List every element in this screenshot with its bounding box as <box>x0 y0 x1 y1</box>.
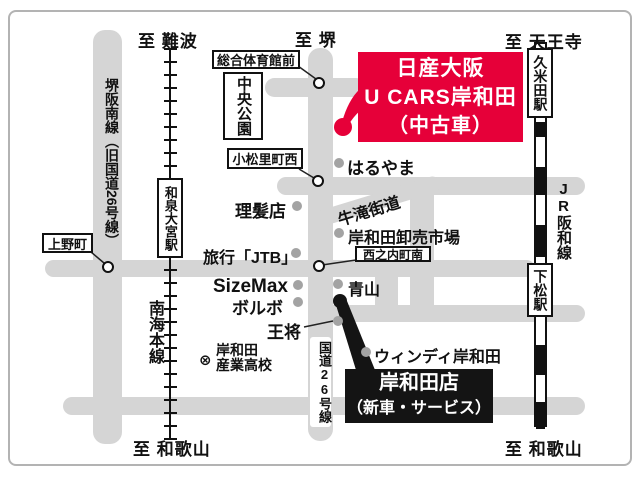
label-box-komatsuri: 小松里町西 <box>227 148 303 169</box>
poi-label-aoyama: 青山 <box>348 276 380 300</box>
map-canvas: 至 難波 至 堺 至 天王寺 至 和歌山 至 和歌山 堺阪南線（旧国道26号線）… <box>0 0 640 480</box>
poi-dot-haruyama <box>334 158 344 168</box>
poi-label-jtb: 旅行「JTB」 <box>203 244 297 268</box>
direction-label-namba: 至 難波 <box>138 27 198 52</box>
poi-label-school-line2: 産業高校 <box>216 358 272 373</box>
ucars-line1: 日産大阪 <box>397 54 485 83</box>
jr-black-segment <box>536 225 545 257</box>
poi-label-haruyama: はるやま <box>347 154 415 179</box>
main-store-line1: 岸和田店 <box>379 371 459 396</box>
label-box-ueno: 上野町 <box>42 233 93 253</box>
poi-label-volvo: ボルボ <box>232 294 283 319</box>
label-box-chuokoen: 中央公園 <box>223 72 263 140</box>
station-box-shimomatsu: 下松駅 <box>527 263 553 317</box>
road-label-route26: 国道26号線 <box>310 337 331 427</box>
poi-label-school-line1: 岸和田 <box>216 343 272 358</box>
poi-label-school: 岸和田 産業高校 <box>216 343 272 373</box>
poi-label-barber: 理髪店 <box>235 197 286 222</box>
label-box-sogotaiikukan: 総合体育館前 <box>212 50 300 69</box>
jr-black-segment <box>536 345 545 375</box>
station-box-kumeda: 久米田駅 <box>527 48 553 118</box>
ucars-callout-box: 日産大阪 U CARS岸和田 （中古車） <box>358 52 523 142</box>
railway-label-jr-hanwa: JR阪和線 <box>551 170 571 270</box>
poi-dot-aoyama <box>333 279 343 289</box>
intersection-circle-nishinouchi <box>313 260 325 272</box>
ucars-line3: （中古車） <box>388 112 493 141</box>
ucars-location-dot <box>334 118 352 136</box>
main-store-callout-box: 岸和田店 （新車・サービス） <box>345 369 493 423</box>
poi-label-osho: 王将 <box>267 318 301 343</box>
poi-dot-osho <box>333 316 343 326</box>
intersection-circle-komatsuri <box>312 175 324 187</box>
poi-dot-windy <box>361 347 371 357</box>
poi-dot-sizemax <box>293 280 303 290</box>
station-box-izumiomiya: 和泉大宮駅 <box>157 178 183 258</box>
jr-black-segment <box>536 402 545 429</box>
direction-label-sakai: 至 堺 <box>295 26 337 51</box>
poi-dot-barber <box>292 201 302 211</box>
poi-dot-volvo <box>293 297 303 307</box>
direction-label-wakayama-left: 至 和歌山 <box>133 435 211 460</box>
direction-label-wakayama-right: 至 和歌山 <box>505 435 583 460</box>
road-label-sakaihannan: 堺阪南線（旧国道26号線） <box>96 70 119 255</box>
school-symbol-icon: ⊗ <box>199 351 212 369</box>
label-box-nishinouchi: 西之内町南 <box>355 246 431 262</box>
intersection-circle-ueno <box>102 261 114 273</box>
jr-black-segment <box>536 122 545 137</box>
poi-label-oroshiuri: 岸和田卸売市場 <box>348 224 460 248</box>
main-store-line2: （新車・サービス） <box>347 396 491 421</box>
ucars-line2: U CARS岸和田 <box>364 83 517 112</box>
intersection-circle-sogotaiikukan <box>313 77 325 89</box>
jr-black-segment <box>536 167 545 195</box>
main-store-location-dot <box>333 294 347 308</box>
poi-label-windy: ウィンディ岸和田 <box>374 343 501 367</box>
railway-label-nankai: 南海本線 <box>142 296 162 368</box>
